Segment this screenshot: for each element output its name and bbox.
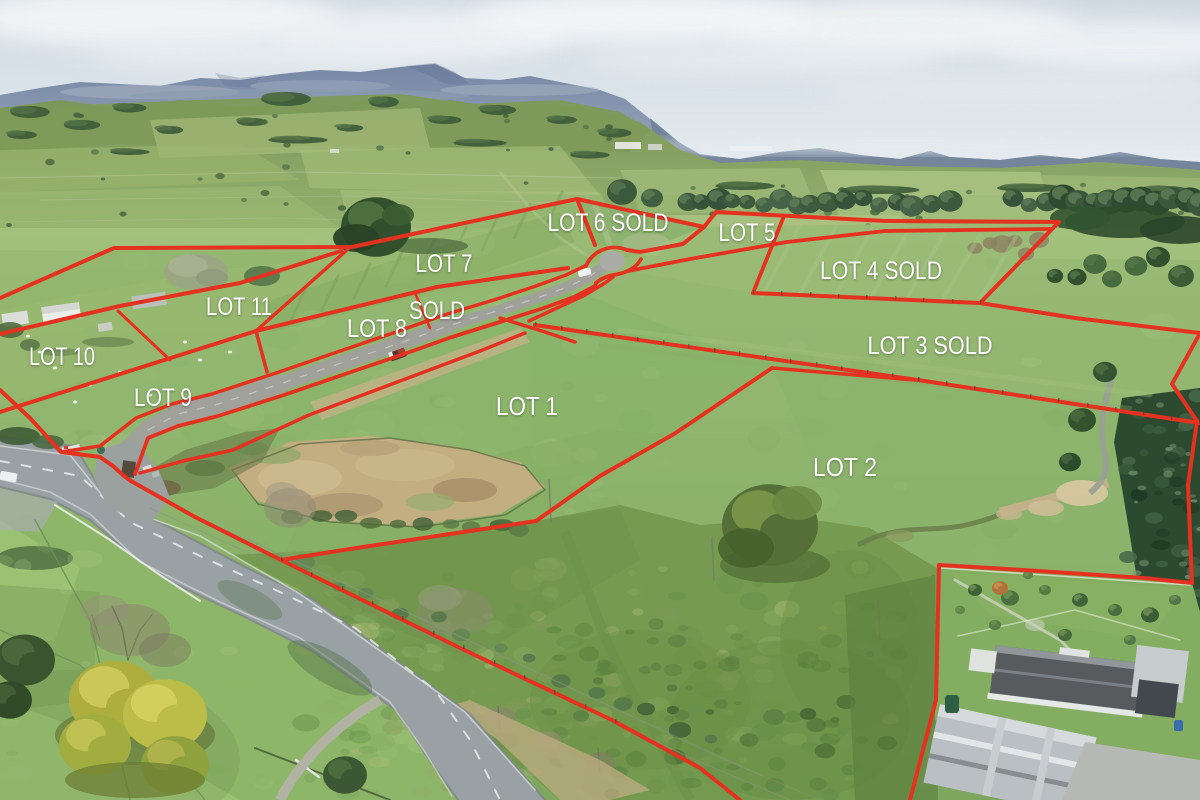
svg-text:LOT 11: LOT 11 — [206, 293, 272, 321]
svg-text:LOT 8: LOT 8 — [347, 315, 407, 343]
svg-text:LOT 3 SOLD: LOT 3 SOLD — [868, 332, 993, 360]
svg-text:LOT 9: LOT 9 — [134, 384, 192, 412]
svg-text:LOT 6 SOLD: LOT 6 SOLD — [548, 209, 669, 237]
svg-text:LOT 2: LOT 2 — [813, 452, 877, 482]
svg-text:LOT 7: LOT 7 — [416, 250, 473, 278]
svg-text:LOT 1: LOT 1 — [496, 391, 558, 421]
svg-text:SOLD: SOLD — [409, 297, 465, 325]
svg-text:LOT 10: LOT 10 — [29, 343, 95, 371]
svg-text:LOT 4 SOLD: LOT 4 SOLD — [820, 257, 942, 285]
svg-text:LOT 5: LOT 5 — [719, 219, 776, 247]
